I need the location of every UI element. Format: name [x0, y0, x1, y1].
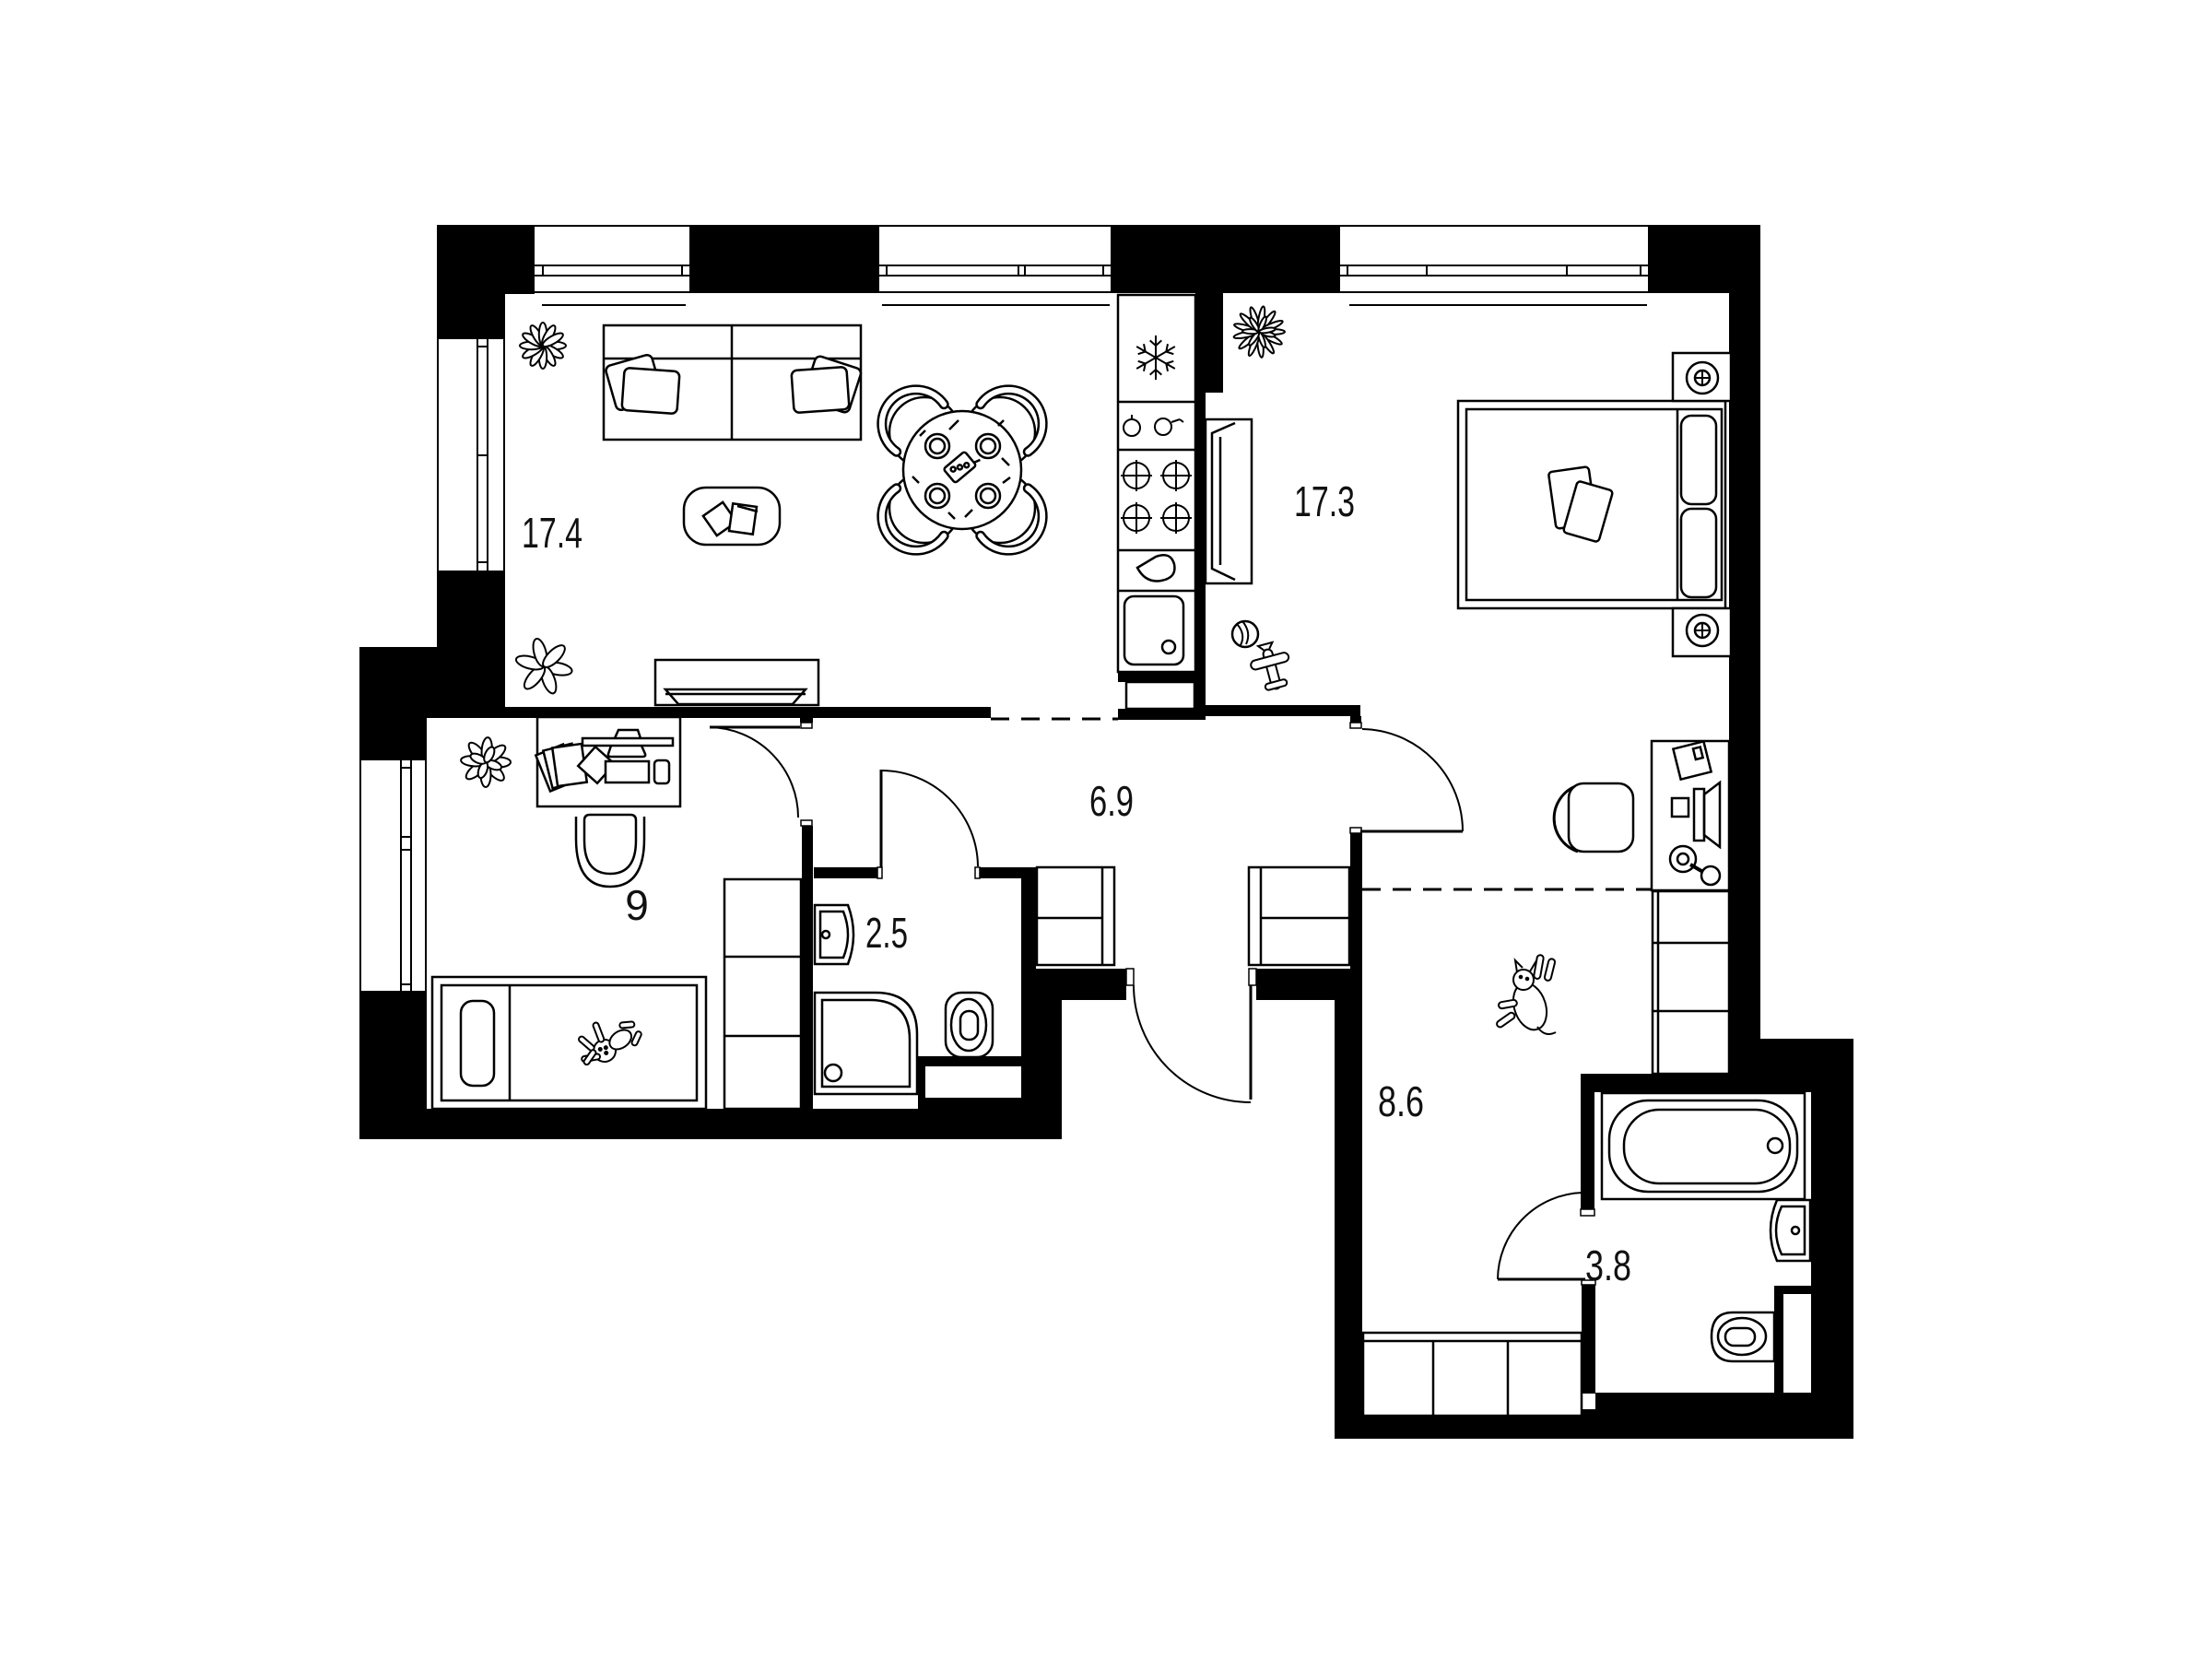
svg-text:8.6: 8.6: [1378, 1077, 1424, 1125]
svg-text:6.9: 6.9: [1089, 777, 1134, 825]
svg-text:9: 9: [625, 881, 649, 929]
svg-text:2.5: 2.5: [865, 909, 908, 957]
svg-text:17.4: 17.4: [522, 509, 582, 557]
svg-text:3.8: 3.8: [1585, 1241, 1631, 1289]
svg-text:17.3: 17.3: [1294, 477, 1355, 525]
